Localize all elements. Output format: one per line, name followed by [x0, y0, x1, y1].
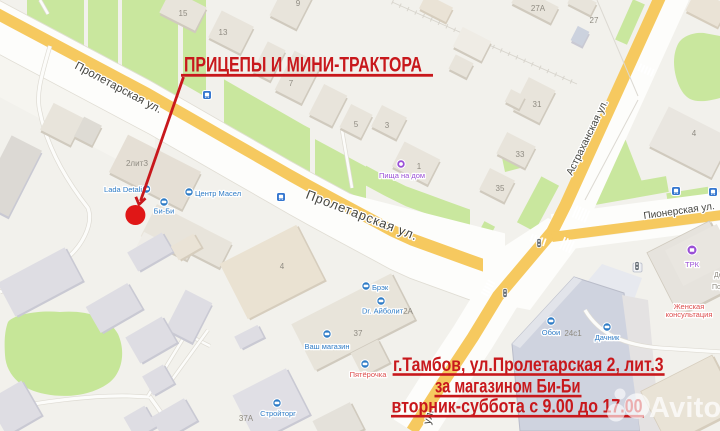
svg-text:4: 4 [692, 129, 697, 138]
svg-text:г.Тамбов, ул.Пролетарская 2, л: г.Тамбов, ул.Пролетарская 2, лит.3 [393, 354, 664, 376]
svg-text:Подд: Подд [712, 284, 720, 291]
svg-text:Би-Би: Би-Би [154, 207, 175, 216]
svg-text:Центр Масел: Центр Масел [195, 189, 241, 198]
svg-text:Пятёрочка: Пятёрочка [350, 370, 388, 379]
svg-text:Дет: Дет [714, 272, 720, 279]
svg-text:ПРИЦЕПЫ И МИНИ-ТРАКТОРА: ПРИЦЕПЫ И МИНИ-ТРАКТОРА [184, 52, 422, 76]
svg-text:Дачник: Дачник [595, 333, 620, 342]
svg-text:Dr. Айболит: Dr. Айболит [362, 307, 404, 316]
svg-text:Avito: Avito [649, 392, 720, 424]
svg-text:1: 1 [417, 162, 422, 171]
svg-text:2литЗ: 2литЗ [126, 159, 148, 168]
svg-text:24с1: 24с1 [564, 329, 582, 338]
svg-text:37А: 37А [239, 414, 254, 423]
svg-text:37: 37 [354, 329, 363, 338]
svg-text:27: 27 [590, 16, 599, 25]
svg-text:2А: 2А [403, 307, 413, 316]
svg-text:13: 13 [219, 28, 228, 37]
svg-text:Пища на дом: Пища на дом [379, 171, 425, 180]
svg-text:за магазином Би-Би: за магазином Би-Би [435, 376, 581, 398]
svg-text:консультация: консультация [666, 310, 713, 319]
svg-text:Брэк: Брэк [372, 283, 389, 292]
svg-text:вторник-суббота с 9.00 до 17.0: вторник-суббота с 9.00 до 17.00 [392, 396, 643, 418]
svg-text:33: 33 [516, 150, 525, 159]
svg-text:Lada Detali: Lada Detali [104, 185, 142, 194]
svg-text:35: 35 [496, 184, 505, 193]
svg-text:7: 7 [289, 79, 294, 88]
svg-text:9: 9 [296, 0, 301, 8]
svg-text:3: 3 [385, 121, 390, 130]
svg-text:ТРК: ТРК [685, 260, 700, 269]
svg-text:27А: 27А [531, 4, 546, 13]
svg-text:5: 5 [354, 120, 359, 129]
svg-text:15: 15 [179, 9, 188, 18]
svg-text:4: 4 [280, 262, 285, 271]
svg-text:31: 31 [533, 100, 542, 109]
svg-text:Ваш магазин: Ваш магазин [304, 342, 349, 351]
svg-text:Стройторг: Стройторг [260, 409, 296, 418]
svg-text:Обои: Обои [542, 328, 561, 337]
